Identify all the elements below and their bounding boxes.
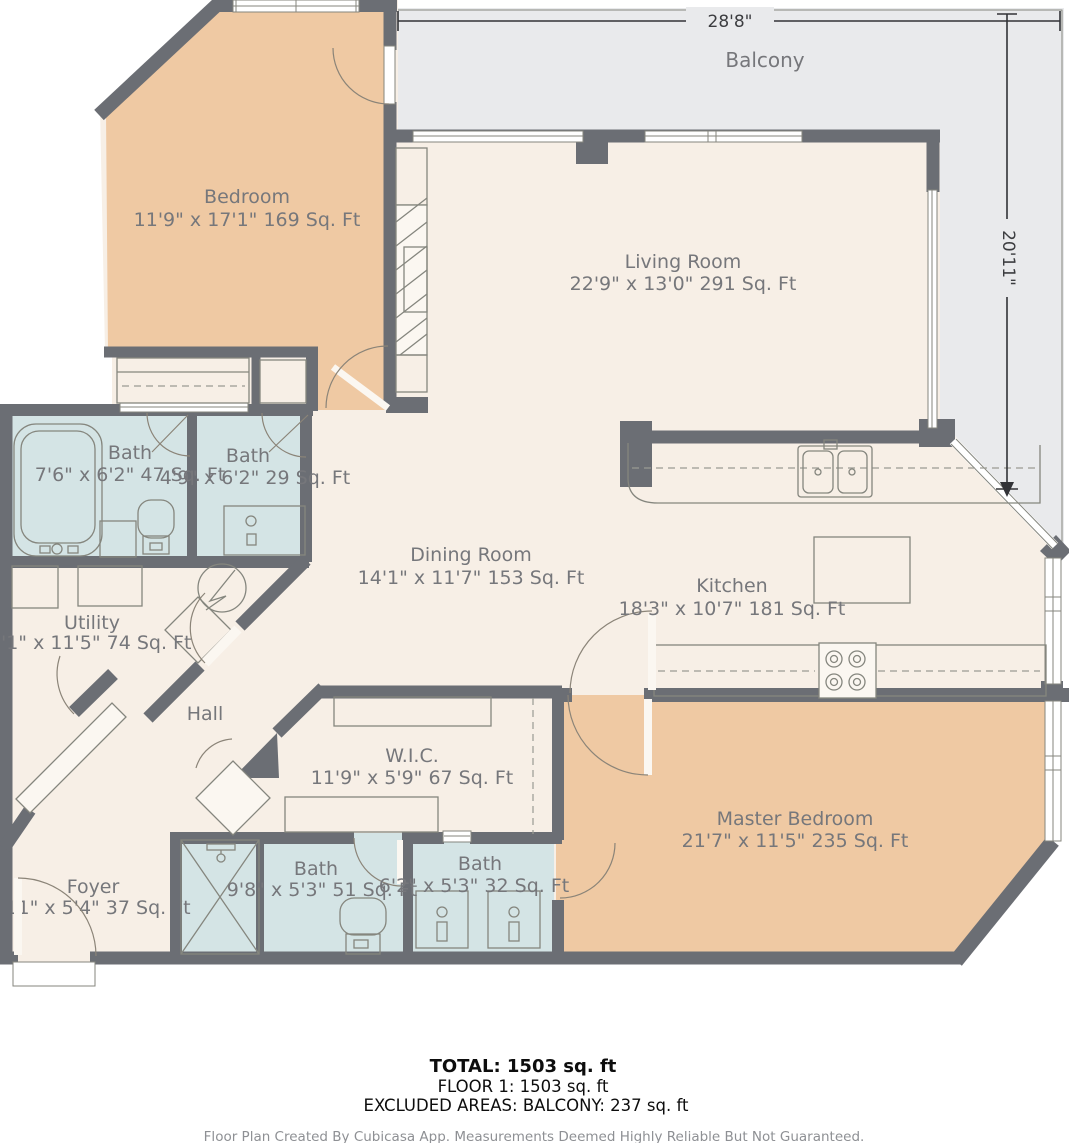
room-dims-utility: '1" x 11'5" 74 Sq. Ft	[1, 632, 191, 654]
room-label-bath-2: Bath	[226, 445, 270, 467]
room-dims-wic: 11'9" x 5'9" 67 Sq. Ft	[311, 767, 514, 789]
room-label-wic: W.I.C.	[385, 745, 439, 767]
shaft-hatched	[396, 205, 427, 355]
room-dims-dining-room: 14'1" x 11'7" 153 Sq. Ft	[358, 567, 585, 589]
stove	[819, 643, 876, 698]
room-label-bath-1: Bath	[108, 442, 152, 464]
room-dims-foyer: 11" x 5'4" 37 Sq. Ft	[5, 897, 190, 919]
room-label-bedroom: Bedroom	[204, 186, 290, 208]
room-label-utility: Utility	[64, 612, 120, 634]
room-label-balcony: Balcony	[725, 48, 804, 72]
room-dims-bedroom: 11'9" x 17'1" 169 Sq. Ft	[134, 209, 361, 231]
area-summary: TOTAL: 1503 sq. ft FLOOR 1: 1503 sq. ft …	[204, 1056, 865, 1143]
dimension-height-label: 20'11"	[998, 230, 1018, 286]
room-dims-master-bedroom: 21'7" x 11'5" 235 Sq. Ft	[682, 830, 909, 852]
footer-disclaimer: Floor Plan Created By Cubicasa App. Meas…	[204, 1129, 865, 1143]
room-label-master-bedroom: Master Bedroom	[717, 808, 874, 830]
room-label-bath-3: Bath	[294, 858, 338, 880]
floor-plan-drawing: Foyer 11" x 5'4" 37 Sq. Ft	[0, 0, 1069, 1143]
summary-total: TOTAL: 1503 sq. ft	[430, 1056, 617, 1077]
room-label-foyer: Foyer	[67, 876, 120, 898]
summary-excluded: EXCLUDED AREAS: BALCONY: 237 sq. ft	[364, 1096, 689, 1115]
room-label-living-room: Living Room	[625, 251, 742, 273]
room-label-bath-4: Bath	[458, 853, 502, 875]
room-dims-bath-4: 6'2" x 5'3" 32 Sq. Ft	[379, 875, 569, 897]
room-label-dining-room: Dining Room	[410, 544, 531, 566]
entry-threshold	[13, 962, 95, 986]
room-dims-living-room: 22'9" x 13'0" 291 Sq. Ft	[570, 273, 797, 295]
summary-floor: FLOOR 1: 1503 sq. ft	[438, 1077, 609, 1096]
dimension-width-label: 28'8"	[708, 12, 753, 32]
floor-plan-page: Foyer 11" x 5'4" 37 Sq. Ft	[0, 0, 1069, 1143]
room-dims-kitchen: 18'3" x 10'7" 181 Sq. Ft	[619, 598, 846, 620]
room-label-kitchen: Kitchen	[696, 575, 767, 597]
room-dims-bath-2: 4'9" x 6'2" 29 Sq. Ft	[160, 467, 350, 489]
room-label-hall: Hall	[187, 703, 224, 725]
